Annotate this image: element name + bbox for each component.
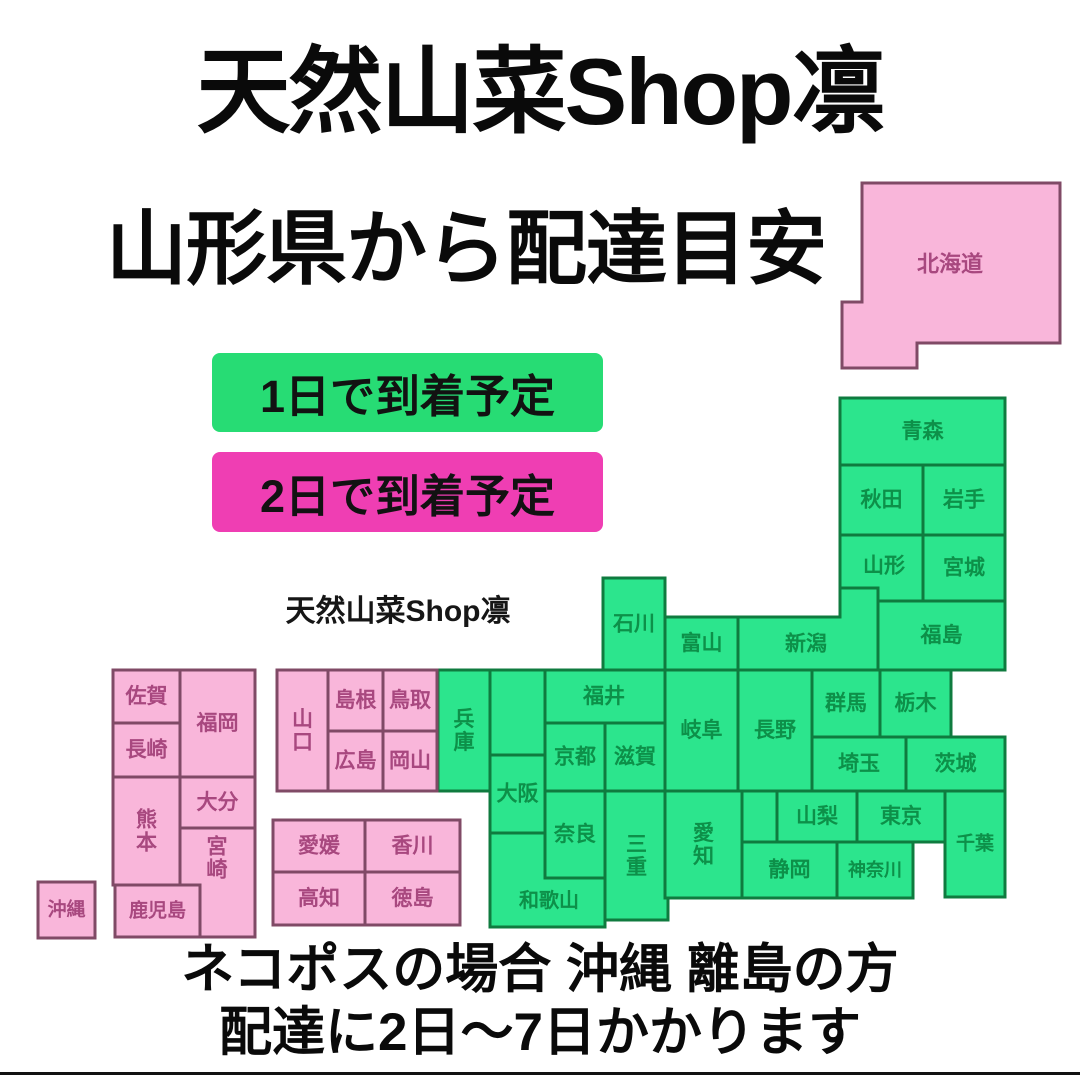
prefecture-label-aichi: 愛知 (693, 821, 714, 868)
prefecture-label-hiroshima: 広島 (335, 749, 377, 773)
prefecture-label-oita: 大分 (197, 791, 239, 814)
prefecture-label-nagasaki: 長崎 (126, 739, 168, 762)
nekopos-note-line1: ネコポスの場合 沖縄 離島の方 (0, 938, 1080, 1001)
prefecture-label-shiga: 滋賀 (614, 745, 656, 769)
prefecture-label-gifu: 岐阜 (681, 718, 723, 742)
prefecture-label-tochigi: 栃木 (895, 691, 938, 715)
prefecture-label-kagawa: 香川 (392, 835, 434, 858)
prefecture-label-fukushima: 福島 (920, 623, 963, 647)
prefecture-label-shimane: 島根 (335, 688, 377, 712)
prefecture-label-yamagata: 山形 (863, 555, 905, 578)
prefecture-label-fukuoka: 福岡 (196, 712, 239, 735)
prefecture-kyoto-north (490, 670, 545, 755)
prefecture-shizuoka-north (742, 791, 777, 842)
prefecture-label-kochi: 高知 (298, 886, 340, 910)
prefecture-label-ibaraki: 茨城 (935, 752, 977, 776)
prefecture-label-niigata: 新潟 (785, 632, 827, 656)
prefecture-label-saitama: 埼玉 (838, 753, 880, 776)
prefecture-label-hyogo: 兵庫 (454, 707, 475, 754)
prefecture-label-toyama: 富山 (681, 631, 723, 655)
japan-map: 北海道青森秋田岩手山形宮城福島新潟富山石川福井群馬栃木埼玉茨城長野岐阜兵庫京都滋… (0, 0, 1080, 1080)
prefecture-label-tokushima: 徳島 (391, 886, 434, 910)
prefecture-label-ishikawa: 石川 (612, 613, 655, 636)
prefecture-label-shizuoka: 静岡 (769, 858, 811, 882)
bottom-divider (0, 1072, 1080, 1075)
prefecture-label-nagano: 長野 (754, 719, 796, 742)
prefecture-label-iwate: 岩手 (942, 488, 985, 512)
prefecture-label-ehime: 愛媛 (298, 834, 341, 858)
prefecture-label-akita: 秋田 (861, 489, 903, 512)
prefecture-label-hokkaido: 北海道 (917, 252, 983, 277)
prefecture-label-miyagi: 宮城 (943, 556, 985, 580)
prefecture-label-okayama: 岡山 (389, 750, 431, 773)
prefecture-label-gunma: 群馬 (825, 691, 867, 715)
prefecture-label-mie: 三重 (626, 833, 647, 879)
nekopos-note: ネコポスの場合 沖縄 離島の方 配達に2日〜7日かかります (0, 938, 1080, 1064)
prefecture-label-yamanashi: 山梨 (796, 805, 838, 828)
nekopos-note-line2: 配達に2日〜7日かかります (0, 1001, 1080, 1064)
prefecture-label-tottori: 鳥取 (389, 688, 431, 712)
prefecture-label-fukui: 福井 (582, 685, 625, 708)
prefecture-label-kanagawa: 神奈川 (848, 859, 902, 880)
prefecture-label-nara: 奈良 (553, 822, 596, 846)
prefecture-label-wakayama: 和歌山 (519, 889, 579, 912)
delivery-map-image: 天然山菜Shop凛 山形県から配達目安 1日で到着予定 2日で到着予定 天然山菜… (0, 0, 1080, 1080)
prefecture-label-okinawa: 沖縄 (47, 898, 85, 921)
prefecture-label-aomori: 青森 (902, 420, 945, 443)
prefecture-label-yamaguchi: 山口 (292, 708, 313, 754)
prefecture-label-saga: 佐賀 (125, 684, 168, 708)
prefecture-niigata (738, 588, 878, 670)
prefecture-label-chiba: 千葉 (956, 833, 995, 855)
prefecture-label-kagoshima: 鹿児島 (129, 899, 186, 922)
prefecture-label-osaka: 大阪 (497, 783, 540, 806)
prefecture-label-tokyo: 東京 (880, 804, 922, 828)
prefecture-label-kumamoto: 熊本 (136, 807, 157, 854)
prefecture-label-kyoto: 京都 (554, 745, 596, 769)
prefecture-label-miyazaki: 宮崎 (207, 834, 228, 881)
